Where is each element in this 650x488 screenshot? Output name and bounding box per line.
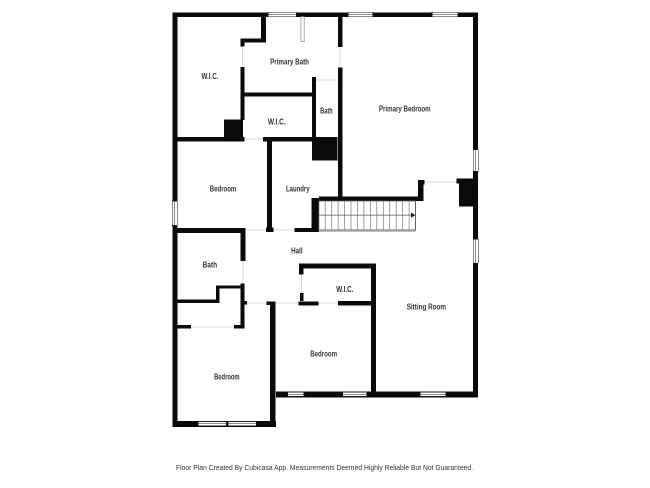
svg-text:Bath: Bath	[203, 261, 218, 270]
svg-text:Sitting Room: Sitting Room	[407, 302, 446, 311]
svg-text:Bedroom: Bedroom	[210, 185, 237, 194]
svg-text:Primary Bath: Primary Bath	[270, 57, 309, 66]
svg-text:Primary Bedroom: Primary Bedroom	[379, 104, 431, 113]
svg-text:W.I.C.: W.I.C.	[336, 285, 353, 294]
svg-text:W.I.C.: W.I.C.	[268, 118, 286, 127]
svg-text:W.I.C.: W.I.C.	[202, 72, 219, 81]
svg-text:Floor Plan Created By Cubicasa: Floor Plan Created By Cubicasa App. Meas…	[176, 465, 473, 472]
svg-text:Bedroom: Bedroom	[310, 349, 337, 358]
svg-text:Bedroom: Bedroom	[214, 372, 240, 381]
svg-text:Bath: Bath	[320, 107, 333, 116]
svg-text:Hall: Hall	[291, 246, 303, 255]
svg-text:Laundry: Laundry	[286, 185, 310, 194]
